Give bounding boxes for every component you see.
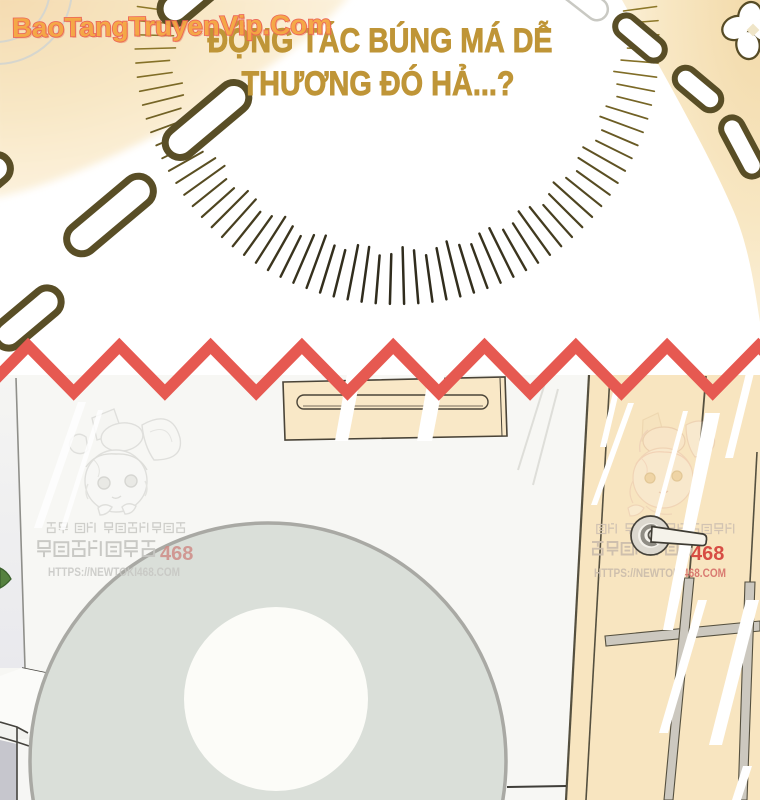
svg-text:THƯƠNG ĐÓ HẢ...?: THƯƠNG ĐÓ HẢ...? [242,65,515,103]
svg-text:BaoTangTruyenVip.Com: BaoTangTruyenVip.Com [12,10,332,43]
svg-text:468: 468 [160,543,193,565]
svg-text:HTTPS://NEWTOKI468.COM: HTTPS://NEWTOKI468.COM [594,568,726,580]
svg-text:HTTPS://NEWTOKI468.COM: HTTPS://NEWTOKI468.COM [48,567,180,579]
svg-text:468: 468 [691,543,724,565]
